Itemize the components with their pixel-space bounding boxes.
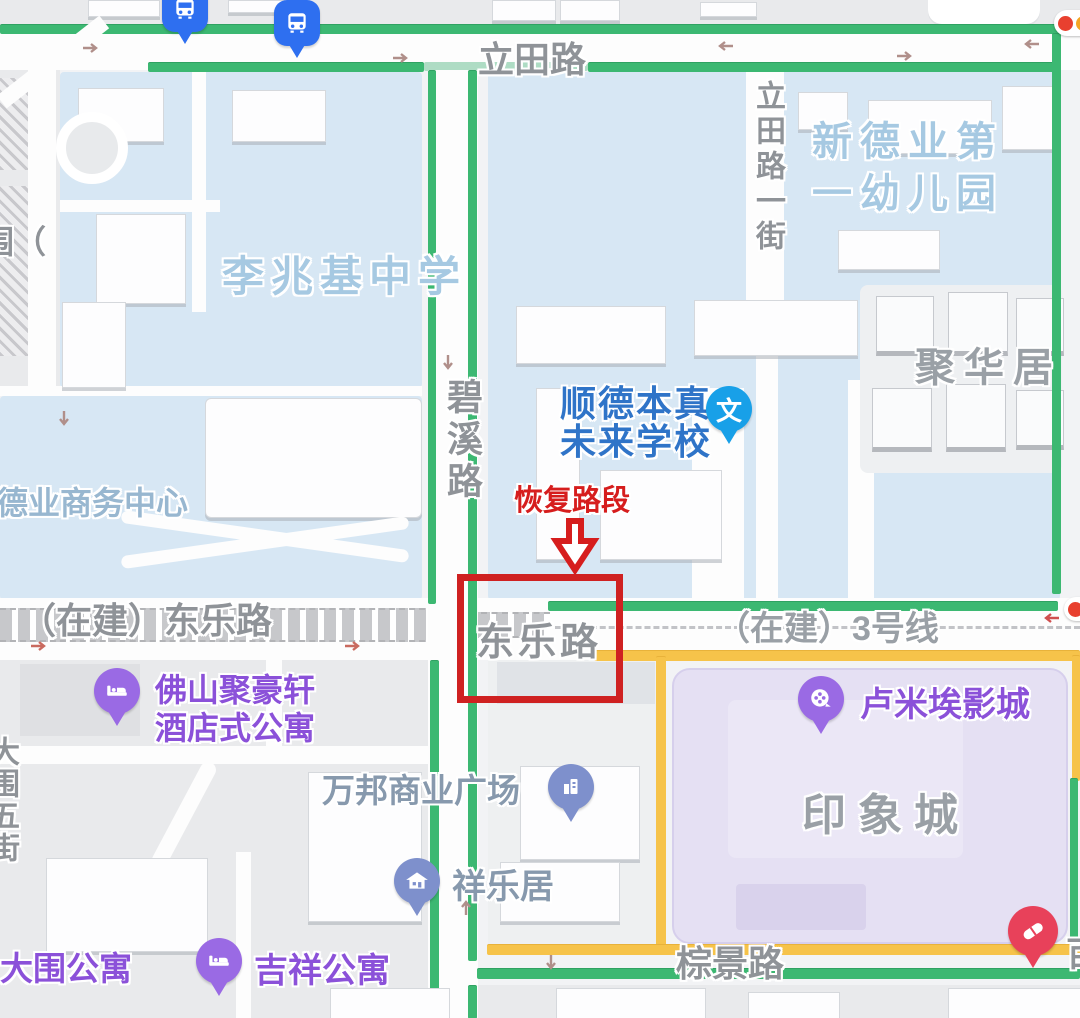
residence-pin[interactable] [394, 858, 440, 916]
building [838, 230, 940, 270]
bus-icon [274, 0, 320, 46]
map-canvas[interactable]: 立田路 立田路一街 碧溪路 （在建）东乐路 东乐路 （在建）3号线 棕景路 大围… [0, 0, 1080, 1018]
traffic-light-icon [1054, 10, 1080, 36]
road-line-green [1052, 33, 1061, 594]
plaza-pin[interactable] [548, 764, 594, 822]
annotation-down-arrow [548, 518, 602, 574]
annotation-restored-section: 恢复路段 [514, 487, 630, 516]
building [330, 988, 450, 1018]
path [756, 324, 778, 600]
poi-label-partial-right: 百 [1066, 938, 1080, 972]
bed-icon [94, 668, 140, 714]
building [872, 388, 932, 452]
direction-arrow [545, 954, 557, 974]
bus-stop-pin[interactable] [162, 0, 208, 44]
road-label-line3-construction: （在建）3号线 [716, 612, 939, 646]
poi-label-xindeye-kindergarten[interactable]: 新德业第 [812, 122, 1004, 162]
road-minor [0, 746, 428, 764]
building [96, 214, 186, 304]
road-line-green [588, 62, 1058, 72]
road-label-litian: 立田路 [478, 42, 586, 78]
building [928, 0, 1040, 24]
poi-label-shunde-benzhen[interactable]: 顺德本真 [560, 386, 712, 422]
apartment-pin[interactable] [196, 938, 242, 996]
road-line-green [1070, 778, 1078, 947]
building-icon [548, 764, 594, 810]
bed-icon [196, 938, 242, 984]
road-line-yellow [1072, 655, 1080, 781]
poi-label-jixiang-apartment[interactable]: 吉祥公寓 [254, 954, 390, 988]
road-label-partial-left: 围（ [0, 226, 46, 258]
building [1002, 86, 1056, 150]
poi-label-shunde-benzhen[interactable]: 未来学校 [560, 424, 712, 460]
building [736, 884, 866, 930]
highlight-box [457, 574, 623, 703]
poi-label-xindeye-kindergarten[interactable]: 一幼儿园 [812, 174, 1004, 214]
direction-arrow [714, 40, 734, 52]
poi-label-juhaoxuan-hotel[interactable]: 佛山聚豪轩 [155, 674, 315, 706]
road-label-dongle-construction: （在建）东乐路 [20, 603, 272, 639]
building [700, 2, 757, 17]
pharmacy-pin[interactable] [1008, 906, 1058, 968]
building [46, 858, 208, 952]
road-label-bixi: 碧溪路 [444, 378, 480, 504]
cinema-pin[interactable] [798, 676, 844, 734]
traffic-light-red [1068, 602, 1080, 617]
roundabout [56, 112, 128, 184]
road-line-yellow [594, 650, 1080, 661]
poi-label-juhaoxuan-hotel[interactable]: 酒店式公寓 [155, 712, 315, 744]
road-label-zongjing: 棕景路 [676, 946, 784, 982]
poi-label-lizhaoji-school[interactable]: 李兆基中学 [222, 256, 467, 298]
school-pin[interactable]: 文 [706, 386, 752, 444]
building [516, 306, 666, 364]
building [62, 302, 126, 388]
road-label-dawei-fifth-street: 大围五街 [0, 736, 16, 864]
path [192, 72, 206, 312]
road-line-green [430, 660, 439, 1018]
bus-icon [162, 0, 208, 32]
direction-arrow [58, 410, 70, 430]
road-line-green [468, 70, 477, 961]
poi-label-wanbang-plaza[interactable]: 万邦商业广场 [322, 774, 520, 807]
building [946, 384, 1006, 452]
road-line-yellow [656, 656, 666, 953]
direction-arrow [442, 354, 454, 374]
road-line-green [148, 62, 424, 72]
poi-label-yinxiangcheng-mall[interactable]: 印象城 [802, 794, 970, 838]
direction-arrow [30, 640, 50, 652]
building [205, 398, 422, 518]
road-line-green [428, 70, 436, 604]
traffic-light-red [1058, 16, 1073, 31]
direction-arrow [1040, 612, 1060, 624]
capsule-icon [1008, 906, 1058, 956]
poi-label-lumiere-cinema[interactable]: 卢米埃影城 [860, 688, 1030, 722]
poi-label-deye-center[interactable]: 德业商务中心 [0, 487, 188, 519]
film-reel-icon [798, 676, 844, 722]
building [560, 0, 620, 21]
bus-stop-pin[interactable] [274, 0, 320, 58]
house-icon [394, 858, 440, 904]
building [556, 988, 706, 1018]
direction-arrow [82, 42, 102, 54]
direction-arrow [1020, 38, 1040, 50]
building [492, 0, 556, 21]
traffic-light-amber [1076, 16, 1080, 31]
hotel-pin[interactable] [94, 668, 140, 726]
education-icon: 文 [706, 386, 752, 432]
direction-arrow [896, 50, 916, 62]
building [748, 992, 840, 1018]
poi-label-xiangleju[interactable]: 祥乐居 [452, 870, 554, 904]
road-line-green [468, 985, 477, 1018]
building [948, 988, 1080, 1018]
road-label-litian-first-street: 立田路一街 [752, 80, 782, 255]
direction-arrow [392, 52, 412, 64]
poi-label-dawei-apartment[interactable]: 大围公寓 [0, 952, 132, 985]
poi-label-juhuaju[interactable]: 聚华居 [915, 348, 1062, 388]
building [694, 300, 858, 356]
path [60, 200, 220, 212]
building [232, 90, 326, 142]
direction-arrow [344, 640, 364, 652]
